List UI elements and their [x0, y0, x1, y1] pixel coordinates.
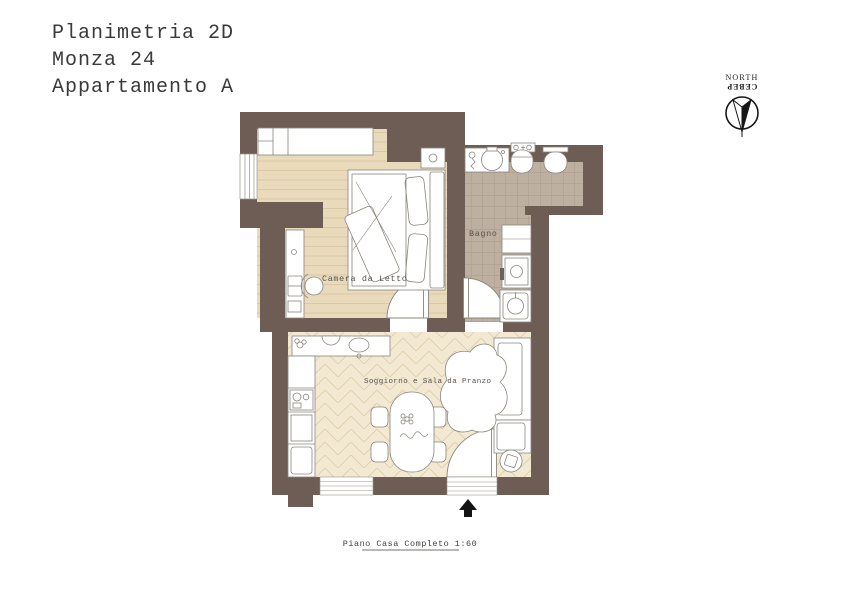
- washing-machine: [502, 255, 531, 288]
- wall-bottom-jut: [288, 495, 313, 507]
- title-block: Planimetria 2D Monza 24 Appartamento A: [52, 20, 234, 101]
- bathroom-door-leaf: [464, 278, 469, 318]
- bath-cabinet: [502, 225, 531, 253]
- dining-chair: [371, 442, 388, 462]
- title-line-2: Monza 24: [52, 47, 234, 74]
- dining-chair: [371, 407, 388, 427]
- wall-bedroom-left-lower: [260, 228, 285, 332]
- kitchen-base-cabinets: [288, 356, 315, 477]
- laundry-sink: [500, 290, 531, 322]
- wall-bedroom-left-upper: [240, 112, 257, 154]
- title-line-3: Appartamento A: [52, 74, 234, 101]
- nightstand: [421, 148, 445, 168]
- stove: [290, 390, 313, 410]
- plan-caption: Piano Casa Completo 1:60: [343, 539, 477, 549]
- bidet: [511, 150, 533, 173]
- toilet: [543, 147, 568, 173]
- bedroom-window: [240, 154, 257, 199]
- living-room-label: Soggiorno e Sala da Pranzo: [364, 378, 492, 386]
- entrance-steps: [447, 477, 497, 495]
- caption-group: Piano Casa Completo 1:60: [343, 539, 477, 550]
- compass-north-label: NORTH: [725, 73, 758, 82]
- wall-between-doors: [427, 318, 465, 332]
- wall-bedroom-bathroom-divider: [447, 160, 465, 332]
- entrance-arrow-icon: [459, 499, 477, 517]
- towel-radiator: [500, 268, 504, 280]
- wall-right-lower: [531, 215, 549, 495]
- double-bed: [344, 170, 445, 290]
- wall-bedroom-top: [240, 112, 387, 129]
- wardrobe: [258, 128, 373, 155]
- wall-bedroom-living-divider: [260, 318, 390, 332]
- wall-bottom-right: [497, 477, 549, 495]
- title-line-1: Planimetria 2D: [52, 20, 234, 47]
- bedroom-label: Camera da Letto: [322, 274, 408, 284]
- wall-bottom-middle: [373, 477, 447, 495]
- dining-table: [390, 392, 434, 472]
- floor-plan-page: Planimetria 2D Monza 24 Appartamento A: [0, 0, 860, 608]
- wall-right-step: [525, 206, 603, 215]
- side-table: [500, 450, 522, 472]
- wall-bottom-left: [272, 477, 320, 495]
- compass-cyrillic-label: СЕВЕР: [727, 82, 758, 91]
- wall-living-left: [272, 332, 288, 495]
- compass-rose: NORTH СЕВЕР: [725, 73, 758, 137]
- kitchen-counter: [292, 336, 390, 356]
- balcony-steps: [320, 477, 373, 495]
- bathroom-label: Bagno: [469, 229, 498, 239]
- wall-bathroom-right: [583, 145, 603, 206]
- wall-pillar: [240, 202, 323, 228]
- desk: [286, 230, 304, 318]
- wall-window-cap-top: [240, 151, 257, 154]
